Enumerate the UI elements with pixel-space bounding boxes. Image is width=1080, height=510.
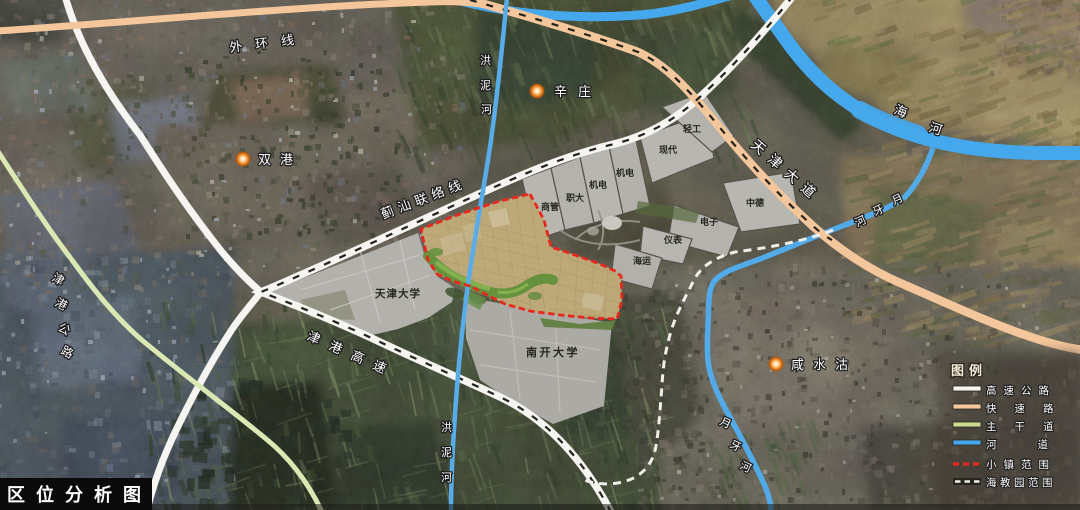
svg-text:洪: 洪 (441, 420, 452, 434)
svg-text:机电: 机电 (589, 179, 607, 190)
svg-text:中德: 中德 (746, 197, 764, 208)
svg-text:小镇范围: 小镇范围 (986, 458, 1056, 471)
svg-text:海教园范围: 海教园范围 (986, 476, 1056, 489)
svg-text:现代: 现代 (659, 144, 677, 155)
svg-text:天津大学: 天津大学 (375, 287, 421, 300)
svg-text:高速公路: 高速公路 (986, 384, 1056, 397)
svg-text:洪: 洪 (480, 53, 491, 67)
svg-text:泥: 泥 (480, 79, 491, 92)
svg-text:海运: 海运 (633, 255, 652, 266)
svg-text:咸水沽: 咸水沽 (791, 357, 857, 372)
svg-text:主干道: 主干道 (986, 420, 1072, 433)
svg-text:快速路: 快速路 (986, 402, 1072, 415)
svg-text:双港: 双港 (258, 152, 302, 167)
svg-text:机电: 机电 (616, 167, 634, 178)
svg-text:图例: 图例 (951, 363, 987, 378)
svg-text:河道: 河道 (986, 438, 1080, 451)
svg-text:区位分析图: 区位分析图 (7, 484, 152, 505)
svg-text:电子: 电子 (700, 216, 718, 227)
svg-text:辛庄: 辛庄 (554, 84, 602, 99)
svg-text:南开大学: 南开大学 (526, 345, 580, 359)
svg-text:职大: 职大 (566, 192, 584, 203)
svg-text:河: 河 (481, 103, 492, 116)
svg-text:商管: 商管 (541, 201, 559, 212)
svg-text:河: 河 (441, 471, 452, 484)
svg-text:轻工: 轻工 (683, 123, 701, 134)
svg-text:泥: 泥 (441, 446, 452, 459)
svg-text:仪表: 仪表 (663, 234, 683, 245)
